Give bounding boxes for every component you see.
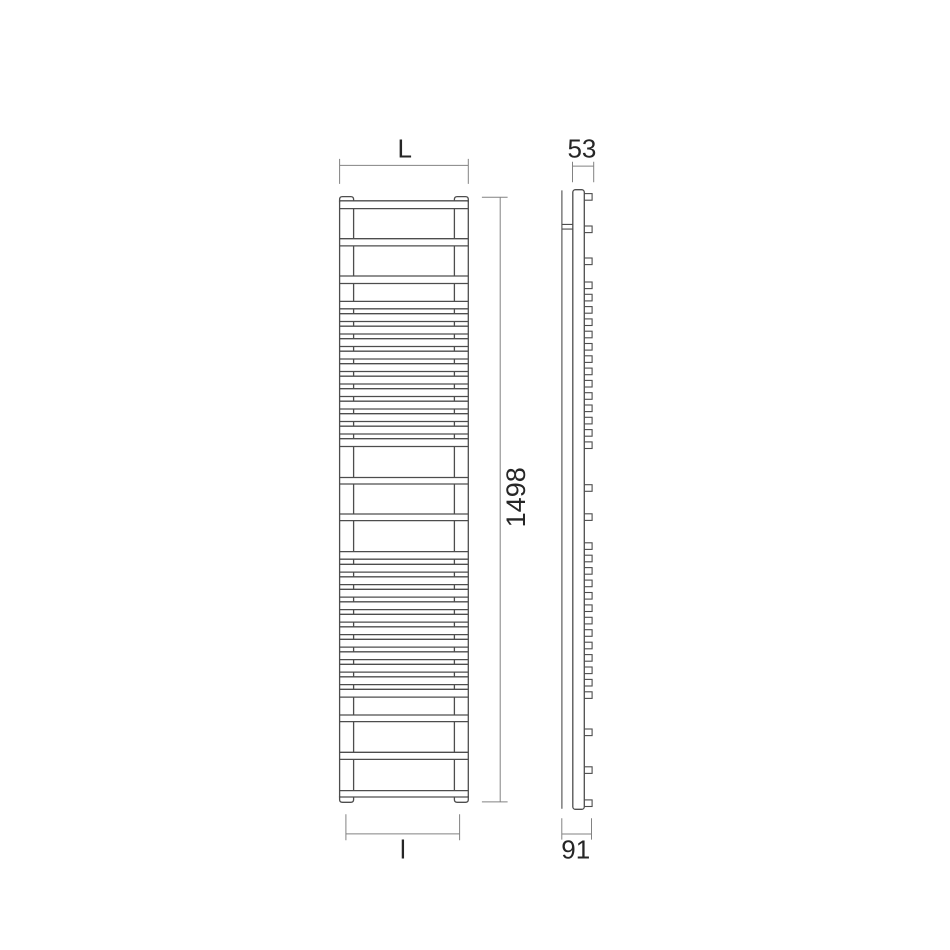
svg-text:L: L (397, 134, 411, 164)
svg-text:53: 53 (567, 133, 596, 163)
svg-text:1498: 1498 (501, 467, 531, 527)
svg-text:91: 91 (561, 835, 590, 865)
svg-text:l: l (400, 834, 406, 864)
